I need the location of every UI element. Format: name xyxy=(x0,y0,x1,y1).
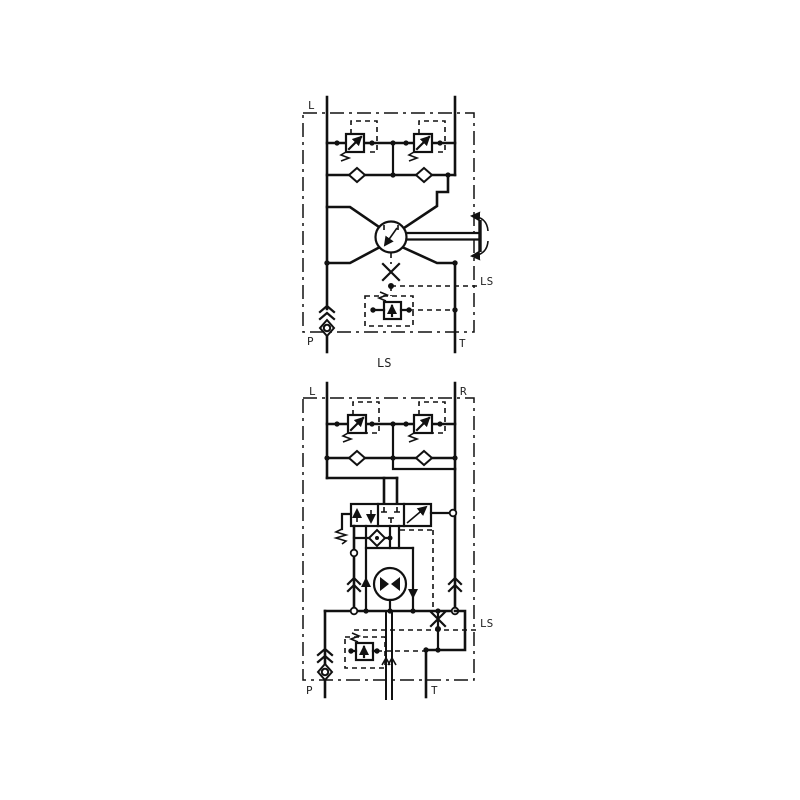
ls-line-label-top: LS xyxy=(480,275,493,288)
steering-unit-diagram-bottom: L R P T LS xyxy=(303,383,493,700)
diagram-caption-ls: LS xyxy=(377,356,391,370)
schematic-svg: L P T LS LS xyxy=(0,0,800,800)
gerotor-metering-section xyxy=(348,526,461,611)
pilot-relief-valve xyxy=(365,292,458,326)
steering-column-symbol xyxy=(407,216,489,256)
port-label-t-top: T xyxy=(459,337,466,350)
lower-gallery xyxy=(325,608,478,700)
port-label-l-top: L xyxy=(308,99,315,112)
spring-symbol xyxy=(336,529,346,544)
inlet-check-valve xyxy=(320,306,334,336)
port-label-l-bottom: L xyxy=(309,385,316,398)
port-label-r-bottom: R xyxy=(460,385,467,398)
metering-unit-symbol xyxy=(376,222,407,253)
port-label-p-bottom: P xyxy=(306,684,313,697)
hydraulic-schematic-page: L P T LS LS xyxy=(0,0,800,800)
port-label-t-bottom: T xyxy=(431,684,438,697)
tank-double-line xyxy=(386,611,392,700)
steering-unit-diagram-top: L P T LS LS xyxy=(303,97,493,370)
port-label-p-top: P xyxy=(307,335,314,348)
ls-line-label-bottom: LS xyxy=(480,617,493,630)
inlet-check-valve xyxy=(318,611,332,697)
plugged-port-x xyxy=(383,264,399,280)
